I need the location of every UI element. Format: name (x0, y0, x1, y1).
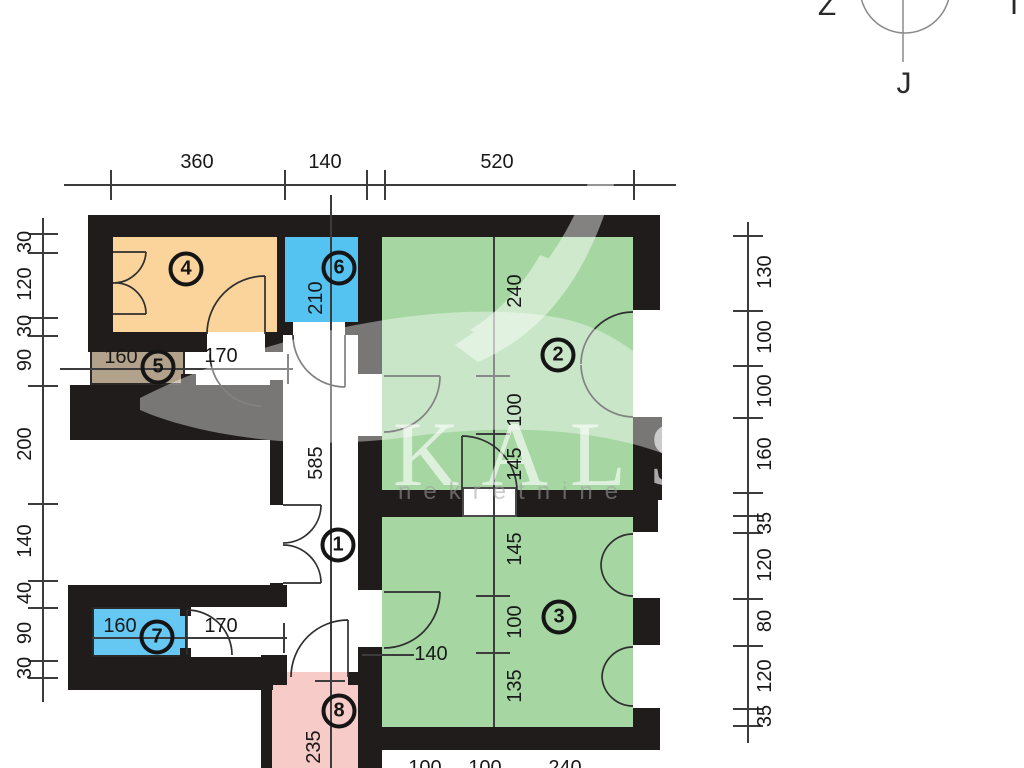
dim-top-520: 520 (480, 152, 513, 172)
tick (733, 598, 763, 600)
wall-left-upper (88, 215, 113, 352)
wall-room7-stub-top (180, 607, 191, 616)
dim-left-40: 40 (15, 582, 35, 604)
wall-room8-top-right-stub (348, 672, 360, 685)
dim-right-35b: 35 (755, 705, 775, 727)
watermark-subtitle: nekretnine (398, 480, 630, 504)
dim-vestibule-170: 170 (204, 346, 237, 366)
tick (28, 385, 58, 387)
tick (315, 680, 345, 682)
dim-room3-100: 100 (505, 605, 525, 638)
tick (283, 623, 285, 653)
room-8-badge: 8 (322, 694, 357, 729)
dim-room5-160: 160 (104, 347, 137, 367)
dim-right-100a: 100 (755, 320, 775, 353)
dim-bottom-100a: 100 (408, 758, 441, 768)
dim-right-35a: 35 (755, 512, 775, 534)
tick (476, 595, 510, 597)
wall-hall-left-upper (270, 380, 283, 505)
compass-west-label: Z (818, 0, 836, 23)
dim-left-90b: 90 (15, 622, 35, 644)
tick (733, 417, 763, 419)
dim-room2-100: 100 (505, 393, 525, 426)
compass-south-label: J (897, 67, 912, 101)
dim-left-200: 200 (15, 427, 35, 460)
wall-top (88, 215, 660, 237)
wall-room5-stub-top (181, 336, 196, 347)
wall-room7-bottom (68, 657, 273, 690)
room-7-badge: 7 (140, 620, 175, 655)
tick (287, 354, 289, 384)
dim-line-room3-door (362, 654, 414, 656)
dim-top-140: 140 (308, 152, 341, 172)
tick (633, 170, 635, 200)
dim-right-160: 160 (755, 437, 775, 470)
dim-bottom-100b: 100 (468, 758, 501, 768)
room6-door-arc (293, 335, 345, 387)
dim-room2-145: 145 (505, 447, 525, 480)
wall-room8-left (261, 685, 272, 768)
dim-right-100b: 100 (755, 374, 775, 407)
wall-central-upper (358, 237, 382, 374)
wall-corridor-top (68, 585, 287, 607)
tick (476, 375, 510, 377)
wall-jamb-vestibule (265, 332, 283, 352)
compass-east-label: I (1010, 0, 1018, 22)
dim-left-120: 120 (15, 267, 35, 300)
dim-room3-door-140: 140 (414, 644, 447, 664)
dim-room3-145: 145 (505, 532, 525, 565)
wall-room7-stub-bottom (180, 648, 191, 657)
wall-room3-bottom (358, 727, 660, 750)
tick (284, 170, 286, 200)
tick (28, 607, 58, 609)
tick (384, 170, 386, 200)
tick (733, 645, 763, 647)
wall-room8-left-block (261, 655, 287, 685)
dim-line-corridor (92, 637, 287, 639)
room-4-badge: 4 (169, 252, 204, 287)
dim-left-140: 140 (15, 524, 35, 557)
wall-room5-stub-bottom (181, 374, 196, 385)
hall-double-door-arc (283, 505, 321, 583)
wall-left-mass (70, 385, 277, 440)
tick (110, 170, 112, 200)
room-5-badge: 5 (141, 350, 176, 385)
dim-room7-160: 160 (103, 616, 136, 636)
room8-door-arc (291, 620, 348, 677)
dim-right-120b: 120 (755, 659, 775, 692)
dim-bottom-240: 240 (548, 758, 581, 768)
wall-room6-bottom-left (283, 322, 293, 335)
tick (733, 365, 763, 367)
dim-room8-235: 235 (304, 730, 324, 763)
wall-right-between-windows (633, 598, 660, 645)
tick (366, 170, 368, 200)
dim-line-left (42, 218, 44, 702)
dim-room2-240: 240 (505, 274, 525, 307)
tick (28, 503, 58, 505)
dim-room3-135: 135 (505, 669, 525, 702)
dim-line-top (64, 184, 676, 186)
room-2-badge: 2 (541, 338, 576, 373)
tick (733, 310, 763, 312)
wall-room6-bottom-right (345, 322, 358, 335)
wall-right-upper (633, 215, 660, 310)
dim-line-vestibule (60, 368, 293, 370)
room-4-area (113, 237, 277, 332)
room-1-badge: 1 (321, 528, 356, 563)
dim-left-30b: 30 (15, 315, 35, 337)
floor-plan: KALS nekretnine 360 140 520 30 120 30 90… (0, 0, 1024, 768)
dim-left-30a: 30 (15, 231, 35, 253)
dim-line-right (747, 222, 749, 743)
tick (733, 235, 763, 237)
dim-left-30c: 30 (15, 657, 35, 679)
dim-right-120a: 120 (755, 548, 775, 581)
dim-right-130: 130 (755, 255, 775, 288)
dim-corridor-170: 170 (204, 616, 237, 636)
tick (476, 652, 510, 654)
dim-hall-585: 585 (306, 446, 326, 479)
room-6-badge: 6 (322, 251, 357, 286)
dim-room6-210: 210 (306, 281, 326, 314)
dim-top-360: 360 (180, 152, 213, 172)
wall-room4-room6-divider (277, 237, 285, 332)
dim-right-80: 80 (755, 610, 775, 632)
dim-left-90a: 90 (15, 349, 35, 371)
tick (733, 492, 763, 494)
room-3-badge: 3 (542, 600, 577, 635)
